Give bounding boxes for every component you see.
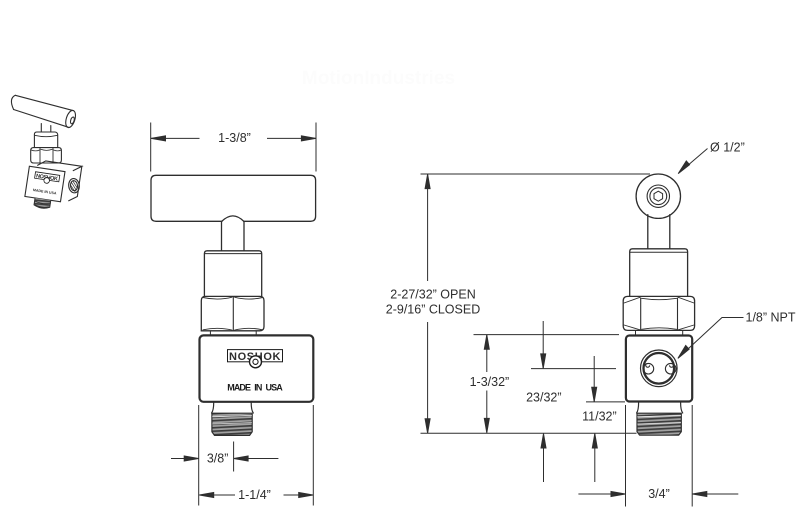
svg-text:MADE IN USA: MADE IN USA (227, 383, 283, 393)
svg-text:MotionIndustries: MotionIndustries (302, 68, 455, 89)
svg-text:3/4”: 3/4” (648, 487, 670, 501)
svg-text:23/32”: 23/32” (526, 391, 561, 405)
svg-text:1-3/32”: 1-3/32” (470, 375, 510, 389)
svg-text:2-9/16” CLOSED: 2-9/16” CLOSED (386, 302, 480, 316)
svg-text:1-1/4”: 1-1/4” (238, 488, 271, 502)
svg-text:11/32”: 11/32” (582, 410, 617, 424)
svg-text:MADE IN USA: MADE IN USA (33, 188, 57, 196)
svg-text:3/8”: 3/8” (207, 452, 229, 466)
svg-text:Ø 1/2”: Ø 1/2” (710, 141, 745, 155)
svg-text:1/8” NPT: 1/8” NPT (746, 310, 796, 324)
svg-text:2-27/32” OPEN: 2-27/32” OPEN (390, 288, 475, 302)
svg-text:1-3/8”: 1-3/8” (218, 131, 251, 145)
